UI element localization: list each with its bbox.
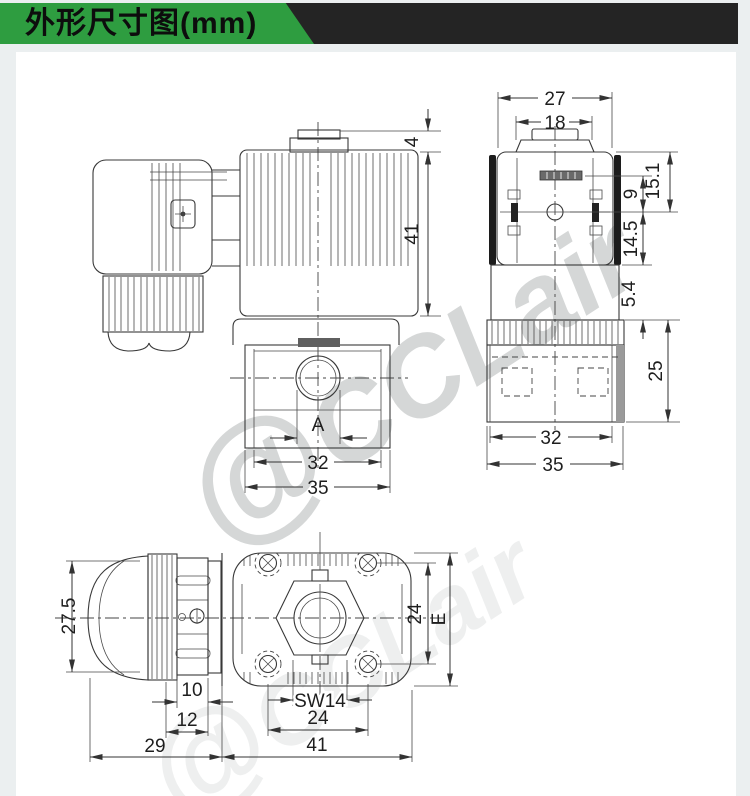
dim-label: 32	[307, 453, 328, 474]
page: { "header": { "title": "外形尺寸图(mm)" }, "w…	[0, 0, 750, 796]
terminal-pin	[176, 576, 210, 585]
coil-ribs	[247, 153, 408, 266]
dim-label: 10	[181, 680, 202, 701]
din-connector	[93, 160, 212, 274]
dim-label: 29	[144, 736, 165, 757]
side-view: 4 41 A 32 35	[93, 109, 441, 499]
dim-label: 9	[621, 189, 642, 200]
dim-label: 27	[544, 89, 565, 110]
dim-label: 35	[542, 455, 563, 476]
extension-lines	[245, 131, 441, 493]
dim-label: 25	[646, 360, 667, 381]
connector-side-right	[614, 155, 621, 265]
adjust-icon	[175, 206, 191, 222]
mount-plate	[208, 561, 221, 673]
spring-clip-left	[508, 190, 520, 235]
port-boss	[298, 338, 340, 347]
gland-ribs	[109, 277, 199, 331]
dim-label: 14.5	[621, 221, 642, 258]
knurled-ring	[487, 320, 624, 345]
hidden-port-right	[578, 368, 608, 396]
dim-label: 4	[402, 136, 423, 147]
spring-clip-right	[590, 190, 602, 235]
terminal-box	[177, 600, 208, 634]
coil-body	[240, 150, 418, 316]
dim-label: 12	[176, 710, 197, 731]
dim-label: 24	[307, 708, 329, 729]
cable-gland	[103, 276, 203, 332]
terminal-section	[177, 558, 208, 675]
dim-label: E	[429, 613, 450, 626]
screw	[255, 651, 281, 677]
dim-label: 18	[544, 113, 565, 134]
front-view: 27 18 15.1 9 14.5 5.4 25 32 35	[487, 89, 680, 476]
dim-label: 24	[405, 603, 426, 625]
dim-label: 41	[306, 735, 327, 756]
dim-label: 35	[307, 478, 328, 499]
connector-neck	[212, 170, 240, 266]
hex-tab-top	[312, 570, 328, 581]
gland-ribs	[152, 555, 172, 679]
connector-ribs	[152, 163, 180, 271]
connector-slot	[150, 172, 227, 180]
dim-label: 27.5	[59, 598, 80, 635]
pin-hole	[179, 614, 186, 621]
dim-label: 15.1	[643, 163, 664, 200]
terminal-pin	[176, 649, 210, 658]
dim-label: A	[312, 415, 325, 436]
connector-side-left	[489, 155, 496, 265]
dimension-drawing: 4 41 A 32 35	[0, 0, 750, 796]
screw	[255, 550, 281, 576]
dim-label: 32	[540, 428, 561, 449]
gland-cap	[108, 332, 190, 351]
dim-label: 5.4	[619, 280, 640, 307]
hidden-port-left	[502, 368, 532, 396]
dim-label: 41	[402, 223, 423, 244]
extension-lines	[487, 92, 680, 470]
top-view: 27.5 10 12 29 SW14 24 41 24 E	[55, 532, 458, 762]
